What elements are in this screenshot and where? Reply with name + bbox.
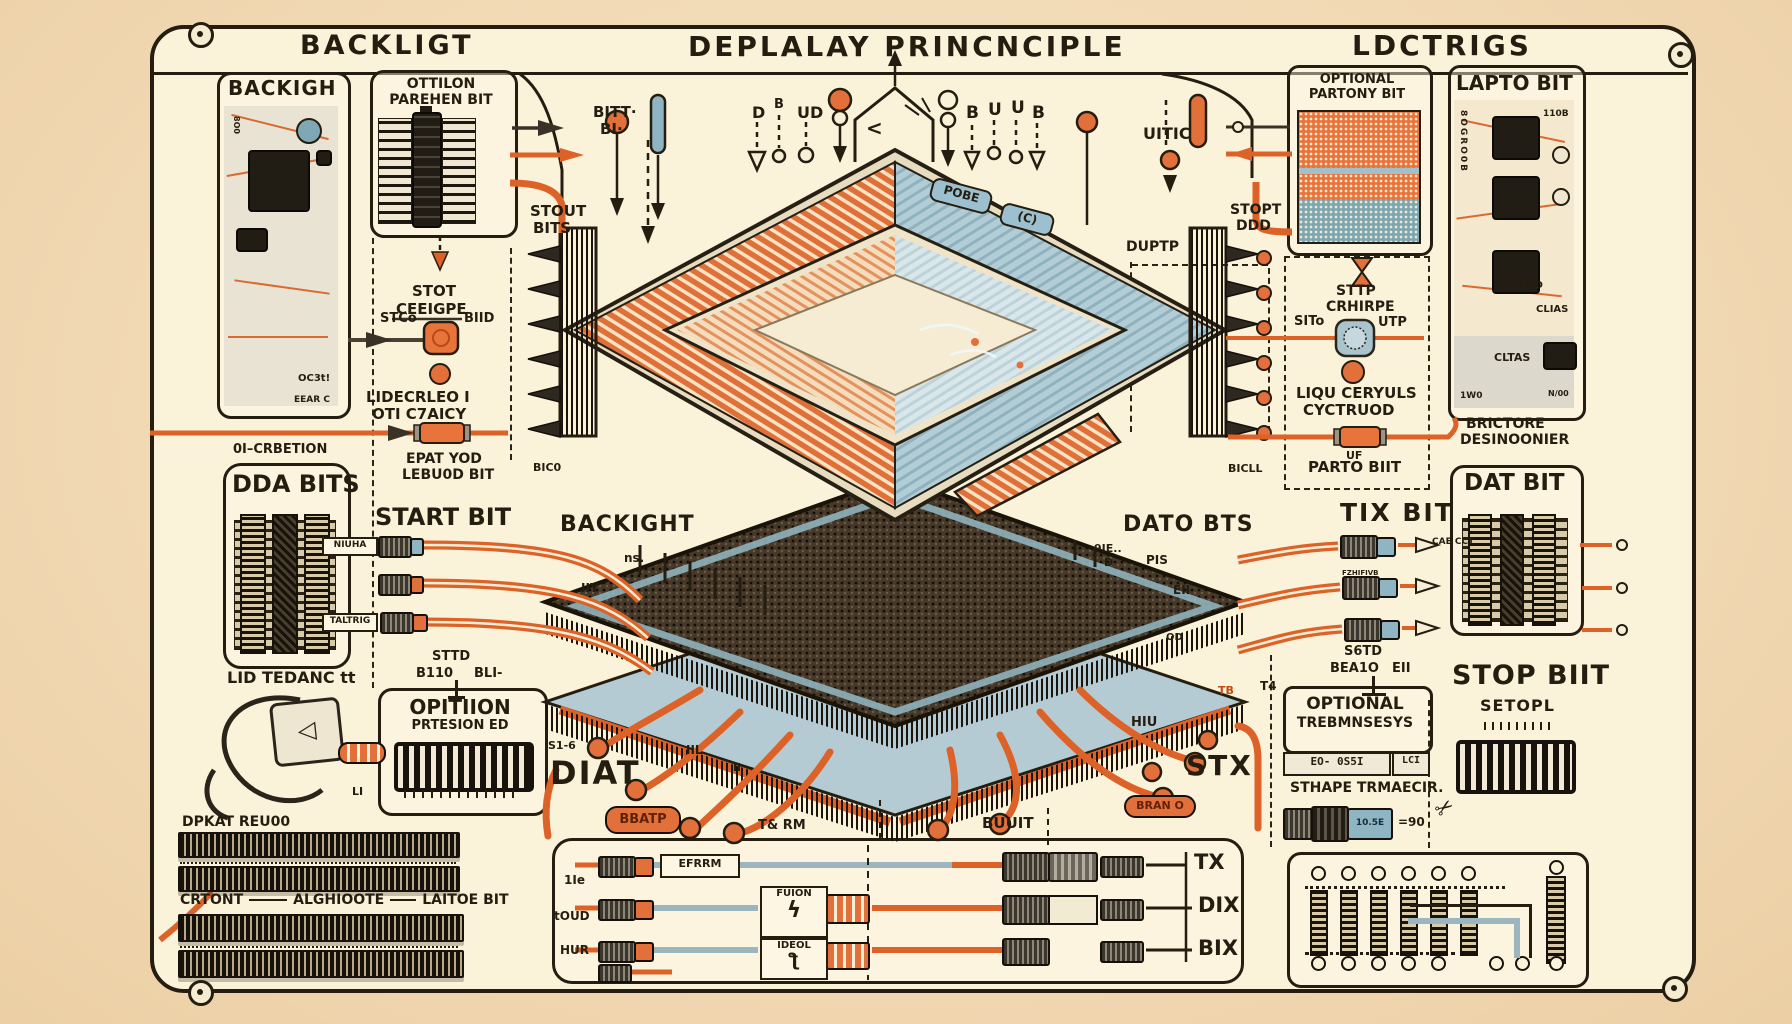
brow3-cluster1: [1002, 938, 1050, 966]
label-b2: B: [966, 105, 979, 122]
bbatp-pill: BBATP: [605, 806, 681, 834]
lcd-display-2: LCI: [1392, 752, 1430, 776]
label-buuit: BUUIT: [982, 816, 1034, 831]
backigh-capacitor: [296, 118, 322, 144]
partony-orange-top: [1299, 112, 1419, 168]
label-iiy: IIY: [581, 582, 599, 594]
res-term-b7: [1515, 956, 1530, 971]
res-blue-wire-h: [1408, 918, 1520, 924]
ideol-box: IDEOL ƪ: [760, 938, 828, 980]
res-term-b8: [1549, 956, 1564, 971]
start-row2-ring: [410, 576, 424, 594]
label-noo: N/00: [1548, 390, 1569, 398]
brow1-stub: [1100, 856, 1144, 878]
res-3: [1370, 890, 1388, 956]
tix-row3-ring: [1380, 620, 1400, 640]
efrrm-tag: EFRRM: [660, 854, 740, 878]
res-term-b2: [1341, 956, 1356, 971]
res-bus-top: [1305, 886, 1505, 889]
res-black-wire-v: [1529, 904, 1532, 958]
label-b-sup: B: [774, 98, 784, 111]
brow1-cluster1: [1002, 852, 1050, 882]
res-term-t5: [1431, 866, 1446, 881]
label-crtont: CRTONT: [180, 893, 243, 907]
label-brictore: BRICTORE: [1466, 417, 1545, 431]
opitiion-ticks: [404, 790, 516, 798]
label-lid-tedanc: LID TEDANC tt: [227, 670, 356, 686]
cable-capsule: [338, 742, 386, 764]
res-term-b4: [1401, 956, 1416, 971]
label-fzh: FZHIFIVB: [1342, 570, 1378, 577]
start-row1-plug: [378, 536, 412, 558]
label-sito: SITo: [1294, 315, 1324, 328]
fuion-coupler: [826, 894, 870, 924]
label-s6td: S6TD: [1344, 645, 1382, 658]
ideol-glyph-icon: ƪ: [789, 950, 799, 971]
dat-bit-title: DAT BIT: [1464, 472, 1565, 495]
optional-title: OPTIONAL: [1285, 696, 1425, 713]
res-term-t4: [1401, 866, 1416, 881]
label-b3: B: [1032, 105, 1045, 122]
s6td-tick-v: [1372, 676, 1375, 693]
start-bit-title: START BIT: [375, 505, 511, 529]
label-iil: IIL: [686, 744, 703, 756]
opitiion-subtitle: PRTESION ED: [380, 719, 540, 732]
label-uitic: UITIC: [1143, 126, 1191, 142]
brow3-plug2: [634, 942, 654, 962]
dash-rule-1: [249, 899, 287, 901]
label-eii-center: EII: [1173, 584, 1190, 596]
taltrig-tag: TALTRIG: [322, 613, 378, 632]
tix-bit-title: TIX BIT: [1340, 500, 1454, 525]
screw-top-right: [1668, 42, 1694, 68]
dda-bar2: [272, 514, 298, 654]
crtont-row: CRTONT ALGHIOOTE LAITOE BIT: [180, 893, 509, 907]
start-row1-ring: [410, 538, 424, 556]
label-stape: STHAPE TRMAECIR.: [1290, 781, 1443, 795]
lapto-vert-text: 8OGRO0B: [1458, 110, 1467, 173]
label-bicll: BICLL: [1228, 463, 1263, 474]
label-bix: BIX: [1198, 938, 1238, 959]
brow2-plug: [598, 899, 636, 921]
trebmnsesys-title: TREBMNSESYS: [1285, 716, 1425, 730]
data-bar-2: [178, 866, 460, 892]
backigh-title: BACKIGH: [228, 78, 337, 98]
brow1-cluster2: [1048, 852, 1098, 882]
screw-top-left: [188, 22, 214, 48]
label-biid: BIID: [464, 312, 494, 325]
ottilon-pins-left: [378, 118, 412, 224]
res-1: [1310, 890, 1328, 956]
label-sttd: STTD: [432, 650, 470, 663]
start-row2-plug: [378, 574, 412, 596]
guide-dash-left2: [510, 248, 512, 460]
label-sieed: SIEED: [1510, 281, 1543, 291]
ottilon-title: OTTILON: [371, 77, 511, 91]
lapto-ring2: [1552, 188, 1570, 206]
dat-bar3: [1532, 514, 1556, 626]
lapto-gray-chip: [1543, 342, 1577, 370]
label-b110: B110: [416, 667, 453, 680]
screw-bottom-right: [1662, 976, 1688, 1002]
label-pis: PIS: [1146, 554, 1168, 566]
res-term-t7: [1549, 860, 1564, 875]
stape-plug1: [1283, 808, 1313, 840]
brow3-stub: [1100, 941, 1144, 963]
tix-row1-ring: [1376, 537, 1396, 557]
data-bar-4: [178, 950, 464, 978]
opitiion-dip-switch: [394, 742, 534, 792]
brow2-plug2: [634, 900, 654, 920]
cable-plug-icon: ◁: [269, 697, 345, 768]
guide-dash-right3: [1132, 264, 1268, 266]
label-9ie: 9IE..: [1094, 543, 1122, 554]
label-s16: S1-6: [548, 740, 576, 751]
backigh-o6o: 8O0: [232, 116, 240, 134]
res-term-b5: [1431, 956, 1446, 971]
stop-dip-switch: [1456, 740, 1576, 794]
label-stopt: STOPT: [1230, 203, 1281, 217]
chevron-icon: <: [866, 118, 883, 138]
tix-row3-plug: [1344, 618, 1382, 642]
partony-title2: PARTONY BIT: [1289, 88, 1425, 101]
ottilon-connector: [412, 112, 442, 228]
label-stout-bits: BITS: [533, 221, 571, 236]
label-laitoe: LAITOE BIT: [422, 893, 508, 907]
label-caecct: CAE CCT: [1432, 538, 1474, 547]
label-oticaicy: OTI C7AICY: [372, 407, 466, 422]
res-term-t2: [1341, 866, 1356, 881]
bran-pill: BRAN O: [1124, 795, 1196, 818]
label-epat: EPAT YOD: [406, 452, 482, 466]
backigh-chip-small: [236, 228, 268, 252]
label-d2: D: [1104, 557, 1113, 568]
screw-bottom-left: [188, 980, 214, 1006]
label-lidecrleo: LIDECRLEO I: [366, 390, 470, 405]
infographic-canvas: BACKLIGT DEPLALAY PRINCNCIPLE LDCTRIGS B…: [0, 0, 1792, 1024]
fuion-glyph-icon: ϟ: [787, 898, 802, 923]
label-setopl: SETOPL: [1480, 698, 1555, 714]
res-black-wire-h: [1410, 904, 1532, 907]
label-dix: DIX: [1198, 895, 1239, 916]
brow4-plug: [598, 964, 632, 983]
partony-blue-bottom: [1299, 200, 1419, 242]
data-bar-1: [178, 832, 460, 858]
label-1w0: 1W0: [1460, 392, 1482, 401]
backigh-eear: EEAR C: [294, 396, 330, 405]
label-diat: DIAT: [550, 757, 641, 789]
label-bic0: BIC0: [533, 462, 561, 473]
ottilon-pins-right: [442, 118, 476, 224]
res-term-b3: [1371, 956, 1386, 971]
lapto-chip1: [1492, 116, 1540, 160]
label-stot: STOT: [412, 284, 456, 299]
guide-dash-right1: [1130, 262, 1132, 432]
dat-bar1: [1468, 514, 1492, 626]
tix-row1-plug: [1340, 535, 1378, 559]
label-clias: CLIAS: [1536, 305, 1568, 315]
label-toud: tOUD: [554, 910, 590, 922]
lapto-ring1: [1552, 146, 1570, 164]
label-d: D: [752, 105, 765, 121]
lapto-title: LAPTO BIT: [1456, 73, 1573, 93]
label-txrm: T& RM: [758, 819, 806, 832]
label-hur: HUR: [560, 944, 589, 956]
backigh-chip-large: [248, 150, 310, 212]
title-deplalay-princnciple: DEPLALAY PRINCNCIPLE: [688, 33, 1126, 61]
tix-row2-ring: [1378, 578, 1398, 598]
dotted-rule-1: [180, 862, 456, 864]
label-sttp: STTP: [1336, 284, 1376, 298]
label-cltas: CLTAS: [1494, 352, 1530, 363]
dda-bar3: [304, 514, 330, 654]
label-n90: =90: [1398, 816, 1425, 828]
setopl-ticks: [1484, 722, 1554, 730]
res-right-bar: [1546, 876, 1566, 964]
start-row3-plug: [380, 612, 414, 634]
label-stx: STX: [1186, 752, 1253, 780]
brow2-cluster2: [1048, 895, 1098, 925]
brow2-cluster1: [1002, 895, 1050, 925]
fuion-box: FUION ϟ: [760, 886, 828, 938]
label-110b: 110B: [1543, 110, 1569, 119]
label-backight: BACKIGHT: [560, 514, 695, 536]
title-ldctrigs: LDCTRIGS: [1352, 32, 1532, 60]
ottilon-subtitle: PAREHEN BIT: [371, 93, 511, 107]
ideol-coupler: [826, 942, 870, 970]
label-duptp: DUPTP: [1126, 240, 1179, 254]
lcd-display-1: EO- 0S5I: [1283, 752, 1391, 776]
res-2: [1340, 890, 1358, 956]
label-1ie: 1Ie: [564, 874, 585, 886]
label-alghoote: ALGHIOOTE: [293, 893, 384, 907]
label-t4: T4: [1260, 680, 1277, 692]
label-desinoover: DESINOONIER: [1460, 433, 1569, 447]
res-term-t3: [1371, 866, 1386, 881]
guide-dash-right2: [1268, 268, 1270, 432]
label-utp: UTP: [1378, 316, 1407, 329]
res-term-b1: [1311, 956, 1326, 971]
stape-plug2: [1311, 806, 1349, 842]
dash-rule-2: [390, 899, 416, 901]
label-cyctruod: CYCTRUOD: [1303, 403, 1395, 418]
label-u2: U: [1011, 100, 1025, 117]
sttd-tick-v: [455, 680, 458, 696]
res-term-b6: [1489, 956, 1504, 971]
backigh-chip-tiny: [316, 150, 332, 166]
backigh-oc3t: OC3t!: [298, 374, 330, 384]
label-bli: BLI-: [474, 667, 502, 680]
label-li: LI: [352, 786, 363, 797]
label-oicrbetion: 0I–CRBETION: [233, 443, 327, 456]
label-u1: U: [988, 102, 1002, 119]
label-lebuod: LEBU0D BIT: [402, 468, 494, 482]
stop-bit-title: STOP BIIT: [1452, 662, 1610, 689]
dotted-rule-2: [180, 946, 458, 948]
label-crhirpe: CRHIRPE: [1326, 300, 1395, 314]
label-ud: UD: [797, 105, 823, 121]
label-dato-bts: DATO BTS: [1123, 514, 1254, 536]
label-parto: PARTO BIIT: [1308, 460, 1401, 475]
partony-title1: OPTIONAL: [1289, 73, 1425, 86]
label-il: Il: [733, 762, 741, 773]
res-blue-wire-v: [1514, 918, 1520, 958]
dat-bar2: [1500, 514, 1524, 626]
label-qd: QD: [1166, 633, 1183, 643]
title-backligt: BACKLIGT: [300, 32, 474, 59]
partony-texture: [1297, 110, 1421, 244]
brow1-plug2: [634, 857, 654, 877]
label-tx: TX: [1194, 852, 1225, 873]
res-term-t6: [1461, 866, 1476, 881]
res-term-t1: [1311, 866, 1326, 881]
label-ns: ns.: [624, 552, 644, 564]
opitiion-title: OPITIION: [380, 697, 540, 717]
brow1-plug: [598, 856, 636, 878]
stape-plug-label: 10.5E: [1347, 808, 1393, 840]
label-dpkat: DPKAT REU00: [182, 815, 290, 829]
dda-bar1: [240, 514, 266, 654]
label-hiu: HIU: [1131, 716, 1157, 729]
brow2-stub: [1100, 899, 1144, 921]
label-stopt-ddd: DDD: [1236, 219, 1271, 233]
tix-row2-plug: [1342, 576, 1380, 600]
label-liqu: LIQU CERYULS: [1296, 386, 1417, 401]
label-bea1o: BEA1O: [1330, 662, 1379, 675]
label-stout: STOUT: [530, 204, 586, 219]
label-eii-right: EII: [1392, 662, 1411, 675]
label-bi: BI·: [600, 122, 623, 137]
data-bar-3: [178, 914, 464, 942]
partony-orange-mid: [1299, 174, 1419, 200]
label-bitt: BITT·: [593, 105, 637, 120]
label-stco: STCo: [380, 312, 417, 325]
dda-bits-title: DDA BITS: [232, 472, 360, 496]
niuha-tag: NIUHA: [322, 537, 378, 556]
brow3-plug: [598, 941, 636, 963]
label-tb: TB: [1218, 685, 1234, 696]
lapto-chip2: [1492, 176, 1540, 220]
start-row3-ring: [412, 614, 428, 632]
